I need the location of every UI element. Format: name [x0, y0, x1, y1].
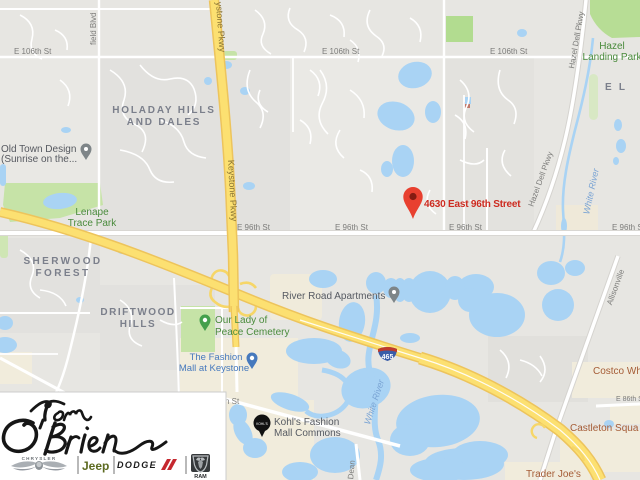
svg-text:E 96th St: E 96th St: [449, 223, 483, 232]
svg-text:n St: n St: [225, 397, 240, 406]
svg-text:RAM: RAM: [194, 474, 207, 480]
svg-text:E 106th St: E 106th St: [490, 47, 528, 56]
svg-text:4630 East 96th Street: 4630 East 96th Street: [424, 199, 521, 210]
svg-text:Hazel: Hazel: [599, 41, 625, 52]
svg-text:HOLADAY HILLS: HOLADAY HILLS: [112, 105, 215, 116]
svg-text:Kohl's Fashion: Kohl's Fashion: [274, 417, 339, 428]
svg-text:Trace Park: Trace Park: [68, 218, 118, 229]
svg-text:River Road Apartments: River Road Apartments: [282, 291, 385, 302]
svg-text:KOHL'S: KOHL'S: [256, 422, 267, 426]
svg-text:Lenape: Lenape: [75, 207, 109, 218]
svg-text:E 96th St: E 96th St: [237, 223, 271, 232]
svg-text:Peace Cemetery: Peace Cemetery: [215, 327, 289, 338]
svg-text:Mall Commons: Mall Commons: [274, 428, 341, 439]
svg-text:Castleton Squa: Castleton Squa: [570, 423, 639, 434]
svg-text:Costco Wh: Costco Wh: [593, 366, 640, 377]
svg-text:Our Lady of: Our Lady of: [215, 315, 267, 326]
svg-text:E L: E L: [605, 82, 627, 93]
svg-text:E 96th St: E 96th St: [335, 223, 369, 232]
svg-text:465: 465: [382, 354, 394, 361]
svg-text:The Fashion: The Fashion: [190, 352, 243, 363]
svg-text:Dean: Dean: [346, 460, 357, 480]
svg-text:Landing Park: Landing Park: [583, 52, 640, 63]
svg-text:DODGE: DODGE: [117, 460, 157, 470]
svg-text:(Sunrise on the...: (Sunrise on the...: [1, 154, 77, 165]
svg-text:E 106th St: E 106th St: [322, 47, 360, 56]
svg-text:Mall at Keystone: Mall at Keystone: [179, 363, 249, 374]
svg-text:field Blvd: field Blvd: [89, 13, 98, 45]
svg-text:CHRYSLER: CHRYSLER: [22, 456, 57, 461]
svg-text:AND DALES: AND DALES: [127, 117, 202, 128]
svg-text:E 96th St: E 96th St: [612, 223, 640, 232]
svg-text:FOREST: FOREST: [36, 268, 91, 279]
svg-text:SHERWOOD: SHERWOOD: [23, 256, 102, 267]
svg-text:Trader Joe's: Trader Joe's: [526, 469, 581, 480]
svg-text:E 86th S: E 86th S: [616, 396, 640, 403]
svg-text:E 106th St: E 106th St: [14, 47, 52, 56]
svg-text:DRIFTWOOD: DRIFTWOOD: [100, 307, 175, 318]
svg-text:HILLS: HILLS: [120, 319, 156, 330]
svg-text:Jeep: Jeep: [82, 459, 109, 473]
